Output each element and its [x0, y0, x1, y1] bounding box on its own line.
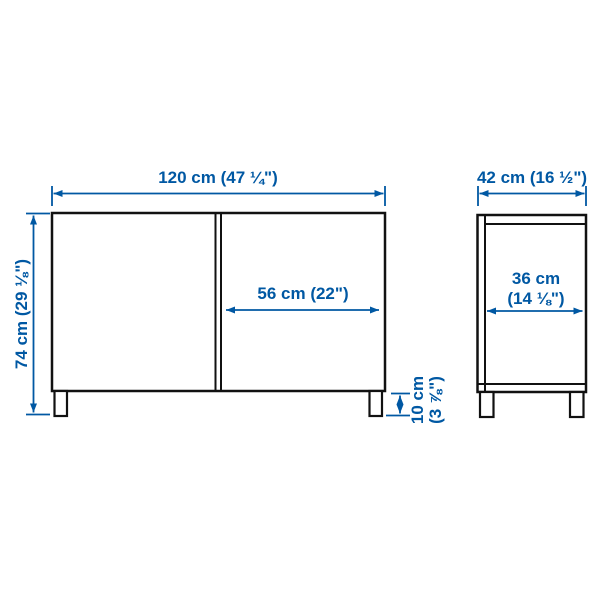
door-width-label: 56 cm (22") — [257, 284, 348, 303]
height-dim-label: 74 cm (29 ⅛") — [12, 259, 31, 369]
inner-depth-label-line2: (14 ⅛") — [507, 289, 564, 308]
inner-depth-label-line1: 36 cm — [512, 269, 560, 288]
dimension-diagram: 120 cm (47 ¼") 74 cm (29 ⅛") 56 cm (22")… — [0, 0, 600, 600]
width-dim-label: 120 cm (47 ¼") — [158, 168, 278, 187]
depth-dim-label: 42 cm (16 ½") — [477, 168, 587, 187]
side-left-leg — [480, 392, 494, 417]
side-right-leg — [570, 392, 584, 417]
front-right-leg — [370, 391, 383, 416]
leg-height-dimension: 10 cm (3 ⅞") — [386, 376, 445, 424]
width-dimension: 120 cm (47 ¼") — [52, 168, 385, 206]
height-dimension: 74 cm (29 ⅛") — [12, 214, 50, 415]
front-view — [52, 213, 385, 416]
front-left-leg — [55, 391, 68, 416]
leg-height-label-line1: 10 cm — [408, 376, 427, 424]
side-view — [478, 215, 587, 417]
leg-height-label-line2: (3 ⅞") — [426, 376, 445, 424]
depth-dimension: 42 cm (16 ½") — [477, 168, 587, 206]
